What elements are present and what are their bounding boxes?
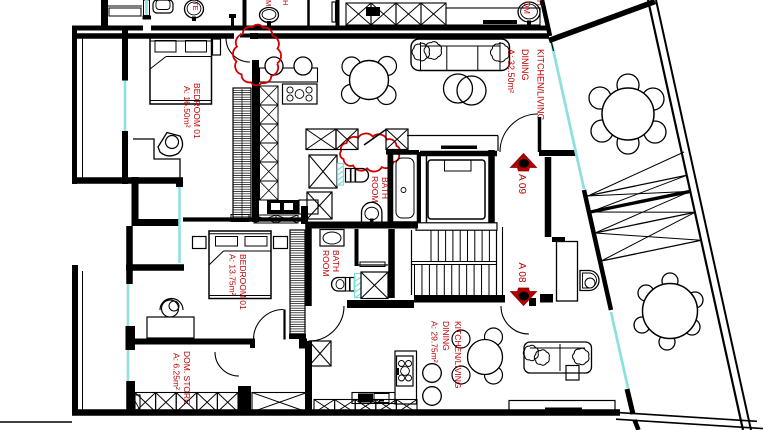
svg-text:A: 6.25m²: A: 6.25m² bbox=[172, 353, 182, 390]
svg-text:KITCHEN/LIVING: KITCHEN/LIVING bbox=[453, 321, 463, 389]
svg-text:DINING: DINING bbox=[441, 321, 451, 351]
svg-text:DINING: DINING bbox=[520, 49, 530, 81]
svg-text:OM: OM bbox=[522, 1, 531, 14]
svg-text:A: 16.50m²: A: 16.50m² bbox=[182, 86, 192, 128]
svg-text:BEDROOM 01: BEDROOM 01 bbox=[238, 254, 248, 310]
svg-text:TE: TE bbox=[191, 1, 200, 11]
svg-text:H: H bbox=[281, 0, 290, 5]
svg-text:KITCHEN/LIVING: KITCHEN/LIVING bbox=[536, 49, 546, 121]
svg-text:ROOM: ROOM bbox=[370, 176, 380, 202]
svg-text:ROOM: ROOM bbox=[321, 250, 331, 276]
svg-text:BEDROOM 01: BEDROOM 01 bbox=[192, 83, 202, 139]
svg-text:A: 29.75m²: A: 29.75m² bbox=[430, 321, 440, 363]
svg-text:A: 32.50m²: A: 32.50m² bbox=[506, 49, 516, 93]
svg-text:M: M bbox=[264, 0, 273, 6]
svg-text:A: 13.75m²: A: 13.75m² bbox=[228, 254, 238, 296]
svg-text:A 09: A 09 bbox=[516, 174, 527, 194]
svg-text:BATH: BATH bbox=[331, 250, 341, 272]
svg-text:A 08: A 08 bbox=[516, 263, 527, 283]
svg-text:DOM. STORE: DOM. STORE bbox=[182, 351, 192, 405]
